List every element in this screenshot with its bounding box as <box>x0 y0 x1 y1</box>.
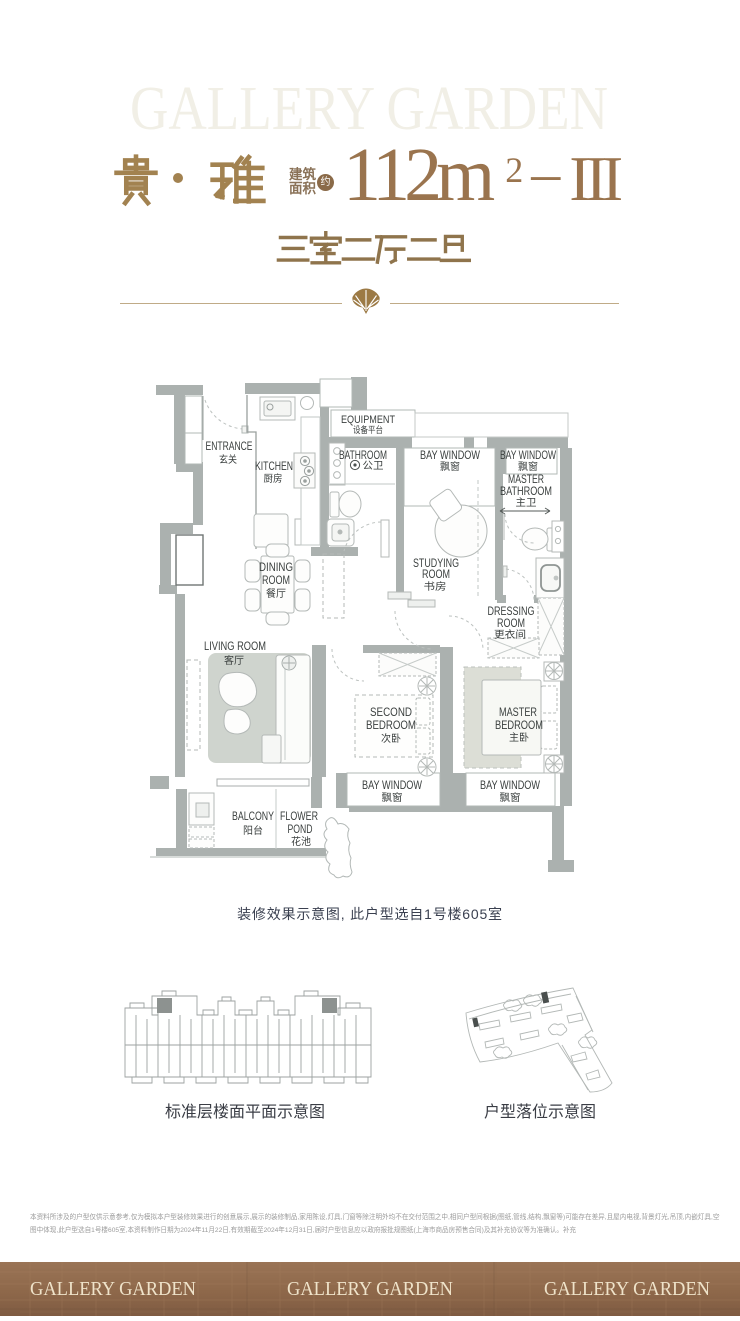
svg-text:BEDROOM: BEDROOM <box>495 718 543 732</box>
svg-text:BAY WINDOW: BAY WINDOW <box>480 778 541 792</box>
svg-text:ROOM: ROOM <box>262 573 290 587</box>
svg-text:GALLERY GARDEN: GALLERY GARDEN <box>287 1279 453 1300</box>
svg-text:更衣间: 更衣间 <box>494 628 526 641</box>
svg-text:BALCONY: BALCONY <box>232 809 274 823</box>
svg-text:飘窗: 飘窗 <box>500 791 521 804</box>
svg-text:BEDROOM: BEDROOM <box>366 718 416 732</box>
svg-text:花池: 花池 <box>291 835 311 848</box>
svg-text:餐厅: 餐厅 <box>266 587 286 600</box>
svg-text:BAY WINDOW: BAY WINDOW <box>500 448 556 462</box>
svg-text:飘窗: 飘窗 <box>440 460 460 473</box>
svg-text:MASTER: MASTER <box>499 705 537 719</box>
svg-text:BATHROOM: BATHROOM <box>339 448 387 462</box>
svg-text:SECOND: SECOND <box>370 705 412 719</box>
svg-text:阳台: 阳台 <box>243 824 263 837</box>
svg-text:DINING: DINING <box>259 560 293 574</box>
svg-text:GALLERY GARDEN: GALLERY GARDEN <box>30 1279 196 1300</box>
svg-text:次卧: 次卧 <box>381 732 401 745</box>
svg-text:ROOM: ROOM <box>422 567 450 581</box>
svg-text:玄关: 玄关 <box>219 453 237 466</box>
svg-text:主卧: 主卧 <box>509 731 529 744</box>
svg-text:主卫: 主卫 <box>516 497 537 509</box>
svg-text:厨房: 厨房 <box>264 472 283 485</box>
svg-text:ROOM: ROOM <box>497 616 525 630</box>
svg-text:ENTRANCE: ENTRANCE <box>206 439 253 453</box>
svg-text:客厅: 客厅 <box>224 654 244 667</box>
svg-text:书房: 书房 <box>424 580 447 593</box>
svg-text:POND: POND <box>288 822 313 836</box>
svg-text:GALLERY GARDEN: GALLERY GARDEN <box>544 1279 710 1300</box>
svg-text:公卫: 公卫 <box>363 461 384 472</box>
svg-text:KITCHEN: KITCHEN <box>255 459 293 473</box>
svg-text:LIVING ROOM: LIVING ROOM <box>204 639 266 653</box>
svg-text:BAY WINDOW: BAY WINDOW <box>420 448 481 462</box>
svg-text:BATHROOM: BATHROOM <box>500 484 552 498</box>
svg-text:设备平台: 设备平台 <box>353 424 383 435</box>
svg-text:GALLERY GARDEN: GALLERY GARDEN <box>130 86 608 138</box>
svg-text:飘窗: 飘窗 <box>382 791 403 804</box>
svg-text:BAY WINDOW: BAY WINDOW <box>362 778 423 792</box>
svg-text:FLOWER: FLOWER <box>280 809 318 823</box>
